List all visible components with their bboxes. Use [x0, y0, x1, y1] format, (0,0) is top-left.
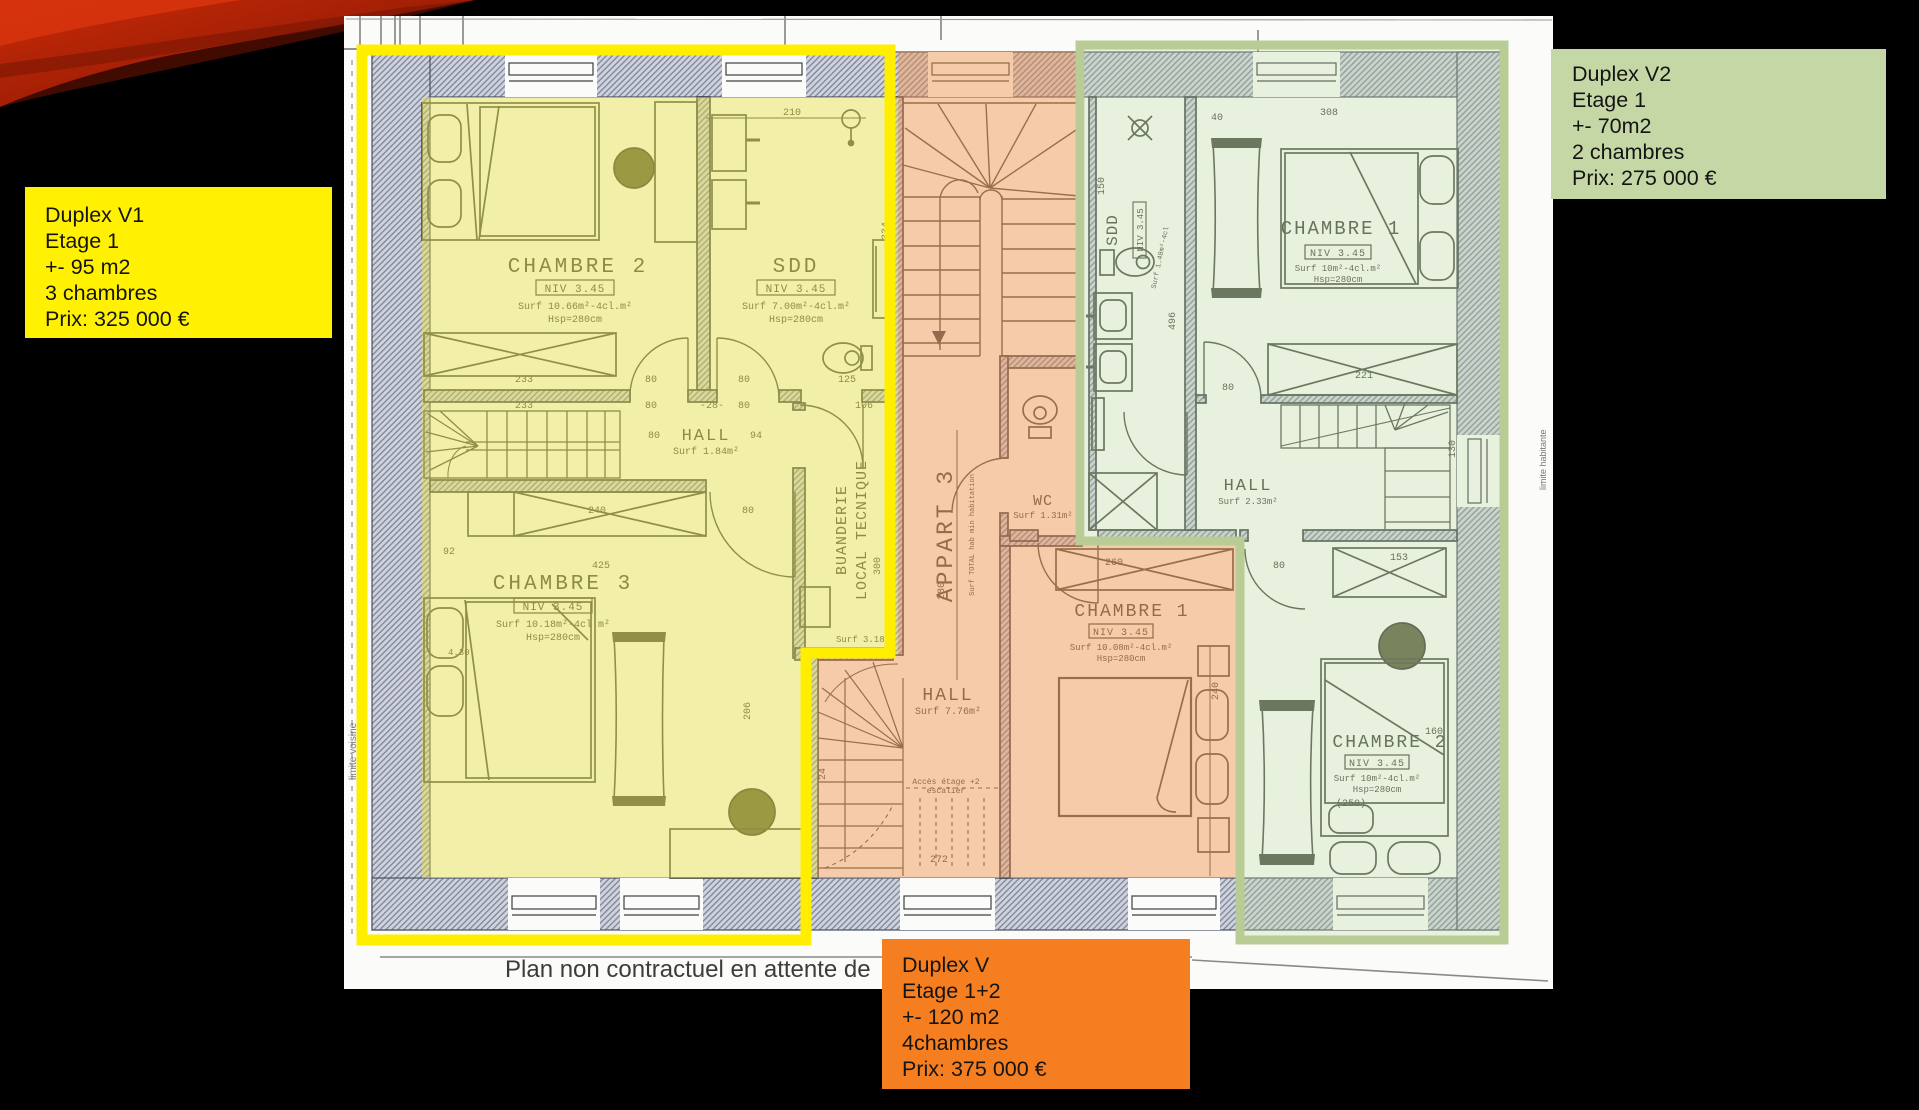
svg-text:limite habitante: limite habitante	[1538, 429, 1548, 490]
svg-text:Plan non contractuel en attent: Plan non contractuel en attente de	[505, 956, 871, 983]
svg-text:Prix: 325 000 €: Prix: 325 000 €	[45, 307, 190, 331]
svg-text:2 chambres: 2 chambres	[1572, 140, 1684, 164]
svg-text:Etage 1: Etage 1	[45, 229, 119, 253]
svg-text:+- 120 m2: +- 120 m2	[902, 1005, 999, 1029]
svg-text:Prix: 375 000 €: Prix: 375 000 €	[902, 1057, 1047, 1081]
svg-text:Etage 1: Etage 1	[1572, 88, 1646, 112]
svg-text:4chambres: 4chambres	[902, 1031, 1008, 1055]
svg-text:+- 70m2: +- 70m2	[1572, 114, 1651, 138]
svg-text:Duplex V1: Duplex V1	[45, 203, 144, 227]
svg-text:Duplex V: Duplex V	[902, 953, 990, 977]
svg-text:+- 95 m2: +- 95 m2	[45, 255, 130, 279]
svg-text:3 chambres: 3 chambres	[45, 281, 157, 305]
svg-text:Etage 1+2: Etage 1+2	[902, 979, 1001, 1003]
svg-text:Prix: 275 000 €: Prix: 275 000 €	[1572, 166, 1717, 190]
svg-text:Duplex V2: Duplex V2	[1572, 62, 1671, 86]
